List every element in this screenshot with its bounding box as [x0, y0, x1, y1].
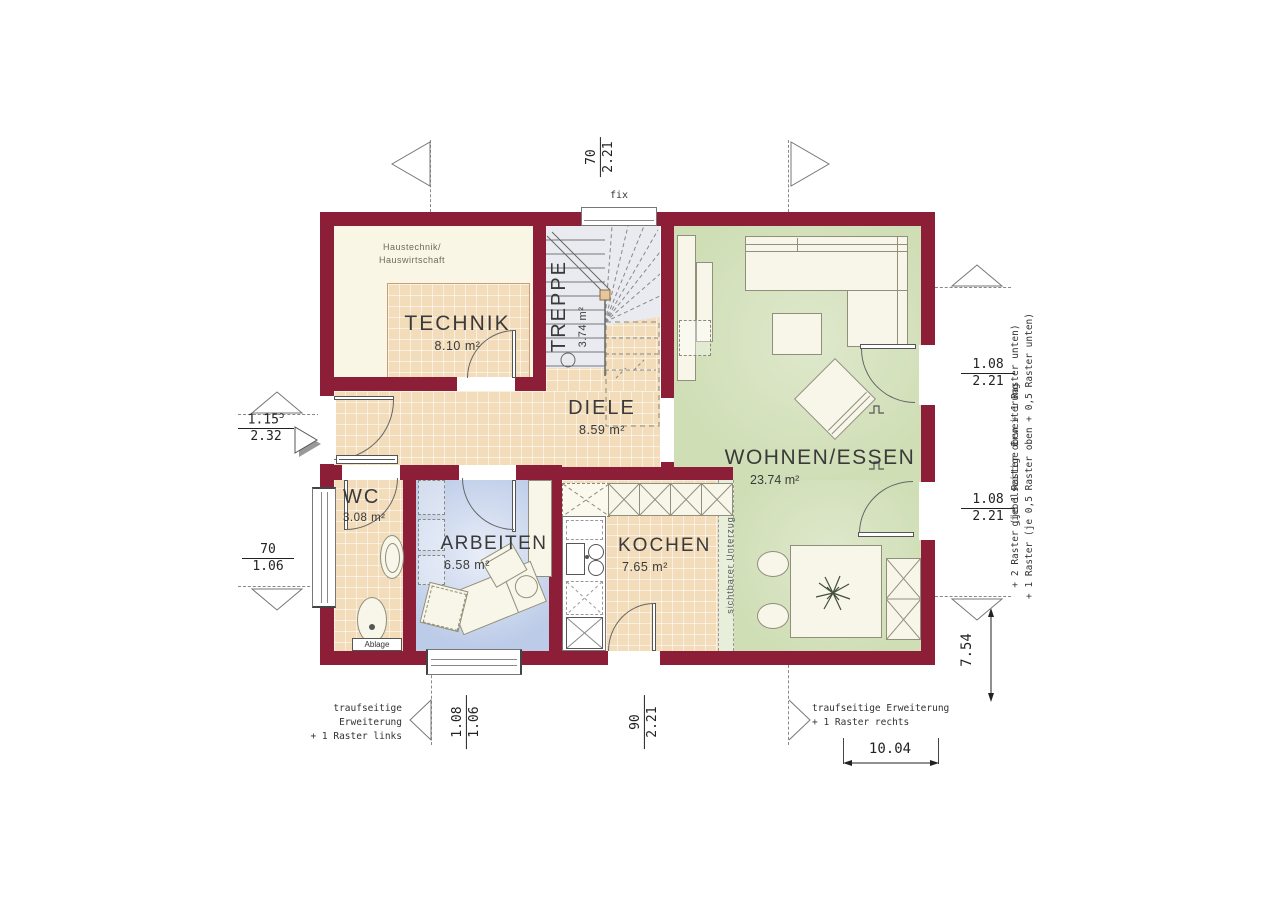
fix-window-glazing — [584, 220, 654, 221]
sofa-seam — [797, 238, 798, 251]
kochen-wall-cabinets — [608, 483, 733, 516]
unterzug-label: sichtbarer Unterzug — [720, 500, 732, 630]
dim-total-width: 10.04 — [855, 741, 925, 757]
wohnen-area-label: 23.74 m² — [750, 471, 840, 489]
flag-top-left — [388, 140, 432, 188]
wohnen-name: WOHNEN/ESSEN — [700, 446, 940, 470]
kochen-corner-cabinet — [562, 483, 610, 517]
diele-area: 8.59 m² — [540, 423, 664, 437]
kochen-corner-cabinet-x — [563, 484, 609, 516]
burner-1 — [588, 544, 604, 560]
sideboard-optional-dashed — [679, 320, 711, 356]
step-symbol-upper — [868, 402, 886, 414]
fix-label: fix — [593, 190, 645, 201]
arbeiten-window-glazing — [431, 659, 517, 666]
kochen-area: 7.65 m² — [622, 560, 710, 574]
chaise-seat-line — [848, 290, 907, 291]
technik-door-opening — [457, 377, 515, 391]
toilet — [357, 597, 387, 643]
technik-name: TECHNIK — [385, 312, 530, 336]
wohnen-area: 23.74 m² — [750, 473, 799, 487]
wc-area: 3.08 m² — [343, 512, 407, 524]
kochen-label: KOCHEN 7.65 m² — [618, 535, 710, 574]
annotation-giebel-3: + 2 Raster (je 1 Raster oben + 1 Raster … — [1009, 311, 1023, 601]
annotation-giebel-2: + 1 Raster (je 0,5 Raster oben + 0,5 Ras… — [1023, 311, 1037, 601]
treppe-area-label: 3.74 m² — [573, 282, 587, 372]
technik-note-line1: Haustechnik/ — [383, 242, 441, 252]
total-width-arrow — [843, 757, 939, 769]
treppe-label: TREPPE — [548, 246, 572, 366]
wall-exterior-right — [921, 212, 935, 665]
arbeiten-window — [426, 649, 522, 675]
fix-window — [581, 207, 657, 226]
flag-top-right — [789, 140, 833, 188]
treppe-name: TREPPE — [548, 246, 571, 366]
chevron-right — [786, 698, 814, 742]
unterzug-text: sichtbarer Unterzug — [725, 516, 735, 614]
arbeiten-shelf-1 — [418, 480, 445, 515]
sideboard-tall — [677, 235, 696, 381]
dishwasher — [566, 581, 603, 615]
annotation-trauf-links: traufseitige Erweiterung + 1 Raster link… — [268, 702, 402, 744]
chevron-left — [406, 698, 434, 742]
annotation-trauf-rechts: traufseitige Erweiterung + 1 Raster rech… — [812, 702, 962, 730]
washbasin-bowl — [385, 543, 400, 573]
kochen-door-opening — [608, 651, 660, 665]
dim-terrace-lower: 1.08 2.21 — [961, 492, 1015, 524]
shelf-unit — [886, 558, 921, 640]
technik-note-line2: Hauswirtschaft — [379, 255, 445, 265]
technik-note: Haustechnik/ Hauswirtschaft — [352, 241, 472, 267]
trauf-rechts-line1: traufseitige Erweiterung — [812, 703, 949, 714]
wall-technik-treppe — [533, 212, 546, 391]
hall-sliding-door — [336, 455, 398, 464]
dim-arbeiten-window: 1.08 1.06 — [450, 695, 482, 749]
toilet-drain — [369, 624, 375, 630]
total-depth-arrow — [984, 608, 998, 702]
fix-text: fix — [610, 190, 628, 201]
trauf-links-line2: + 1 Raster links — [310, 731, 402, 742]
ablage-label: Ablage — [365, 640, 390, 649]
dim-total-depth: 7.54 — [959, 628, 975, 672]
chaise-armrest-line — [897, 237, 898, 346]
triangle-right-upper — [950, 263, 1004, 288]
arbeiten-area: 6.58 m² — [444, 558, 550, 572]
triangle-entrance-axis — [250, 390, 304, 415]
dim-kochen-door: 90 2.21 — [628, 695, 660, 749]
arbeiten-name: ARBEITEN — [438, 533, 550, 555]
wohnen-label: WOHNEN/ESSEN — [700, 446, 940, 470]
desk-chair-2-dash — [423, 585, 467, 631]
trauf-links-line1: traufseitige Erweiterung — [333, 703, 402, 728]
technik-label: TECHNIK 8.10 m² — [385, 312, 530, 353]
sofa-back-line-1 — [746, 244, 907, 245]
sink — [566, 543, 585, 575]
dim-wc-window: 70 1.06 — [242, 542, 294, 574]
counter-dash-top — [566, 520, 603, 540]
plant — [813, 573, 853, 613]
dim-top-window: 70 2.21 — [584, 137, 616, 177]
hall-sliding-door-line — [339, 459, 395, 460]
wc-window-glazing — [321, 492, 328, 603]
terrace-door-lower-opening — [919, 482, 937, 540]
arbeiten-label: ARBEITEN 6.58 m² — [438, 533, 550, 572]
wc-label: WC 3.08 m² — [343, 486, 407, 524]
ablage-shelf: Ablage — [352, 638, 402, 651]
burner-2 — [588, 560, 604, 576]
oven — [566, 617, 603, 649]
triangle-left-lower — [250, 587, 304, 612]
entrance-arrow — [290, 424, 324, 460]
technik-area: 8.10 m² — [385, 339, 530, 353]
wc-window — [312, 487, 336, 608]
washbasin — [380, 535, 404, 579]
kochen-name: KOCHEN — [618, 535, 710, 557]
dining-chair-2 — [757, 603, 789, 629]
sofa-back-line-2 — [746, 251, 907, 252]
dim-entrance: 1.155 2.32 — [238, 411, 294, 445]
wc-name: WC — [343, 486, 407, 509]
trauf-rechts-line2: + 1 Raster rechts — [812, 717, 909, 728]
dining-chair-1 — [757, 551, 789, 577]
terrace-door-upper-opening — [919, 345, 937, 405]
diele-label: DIELE 8.59 m² — [540, 397, 664, 437]
triangle-right-lower — [950, 597, 1004, 622]
floorplan-canvas: Ablage — [0, 0, 1280, 906]
diele-name: DIELE — [540, 397, 664, 420]
dim-terrace-upper: 1.08 2.21 — [961, 357, 1015, 389]
treppe-area: 3.74 m² — [577, 307, 589, 348]
kitchen-counter — [562, 516, 606, 651]
coffee-table — [772, 313, 822, 355]
